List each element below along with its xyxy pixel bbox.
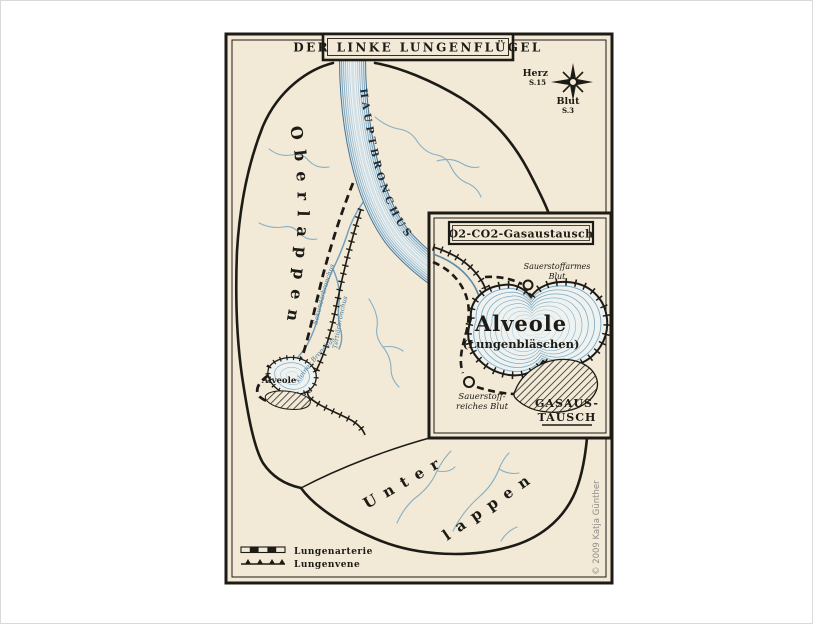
oxygen-rich-blood-marker: [464, 377, 474, 387]
gasaustausch-label-line2: TAUSCH: [538, 411, 597, 424]
legend-vein-label: Lungenvene: [294, 560, 360, 570]
lung-map-illustration: Alveole Oberlappen Unter- lappen HAUPTBR…: [1, 1, 813, 624]
alveole-lake-subtitle: (Lungenbläschen): [463, 337, 580, 351]
compass-blut-page: S.3: [562, 106, 574, 115]
alveole-lake-name: Alveole: [474, 311, 567, 336]
inset-gas-exchange: Alveole (Lungenbläschen) Sauerstoffarmes…: [429, 213, 611, 438]
compass-center: [569, 78, 577, 86]
compass-herz-page: S.15: [529, 78, 546, 87]
oxygen-poor-blood-marker: [524, 281, 533, 290]
oxygen-rich-label-line1: Sauerstoff-: [458, 392, 505, 402]
gasaustausch-label-line1: GASAUS-: [535, 397, 599, 410]
legend-artery-symbol: [241, 547, 285, 553]
oxygen-rich-label-line2: reiches Blut: [456, 402, 509, 412]
legend-artery-label: Lungenarterie: [294, 547, 373, 557]
oxygen-poor-label-line1: Sauerstoffarmes: [524, 262, 591, 271]
map-title: DER LINKE LUNGENFLÜGEL: [293, 39, 542, 55]
copyright-credit: © 2009 Katja Günther: [592, 480, 602, 575]
inset-title-box: O2-CO2-Gasaustausch: [448, 222, 593, 244]
inset-title: O2-CO2-Gasaustausch: [448, 228, 593, 241]
alveole-small-label: Alveole: [261, 376, 297, 386]
title-banner: DER LINKE LUNGENFLÜGEL: [293, 34, 542, 60]
page: Alveole Oberlappen Unter- lappen HAUPTBR…: [0, 0, 813, 624]
oxygen-poor-label-line2: Blut: [548, 272, 567, 281]
